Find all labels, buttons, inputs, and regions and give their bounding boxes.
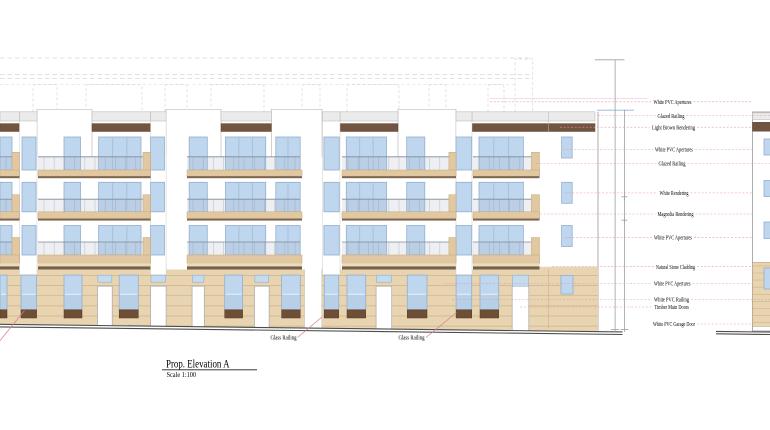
- svg-text:Timber Main Doors: Timber Main Doors: [655, 305, 690, 311]
- svg-text:White PVC Apertures: White PVC Apertures: [654, 236, 692, 242]
- svg-text:White PVC Garage Door: White PVC Garage Door: [653, 322, 695, 328]
- svg-text:Glass Railing: Glass Railing: [271, 336, 297, 342]
- svg-text:Glass Railing: Glass Railing: [399, 336, 425, 342]
- svg-text:Glazed Railing: Glazed Railing: [659, 162, 686, 168]
- svg-text:Light Brown Rendering: Light Brown Rendering: [652, 125, 695, 131]
- svg-text:Glazed Railing: Glazed Railing: [658, 114, 685, 120]
- svg-text:Prop. Elevation A: Prop. Elevation A: [166, 357, 230, 371]
- svg-text:White PVC Apertures: White PVC Apertures: [654, 282, 691, 288]
- svg-text:White PVC Railing: White PVC Railing: [654, 298, 689, 304]
- svg-text:White PVC Apertures: White PVC Apertures: [654, 100, 692, 106]
- svg-text:White PVC Apertures: White PVC Apertures: [655, 148, 693, 154]
- svg-text:Natural Stone Cladding: Natural Stone Cladding: [656, 265, 695, 271]
- svg-text:Scale 1:100: Scale 1:100: [167, 371, 197, 379]
- svg-text:Magnolia Rendering: Magnolia Rendering: [658, 212, 694, 218]
- svg-text:White Rendering: White Rendering: [660, 191, 689, 197]
